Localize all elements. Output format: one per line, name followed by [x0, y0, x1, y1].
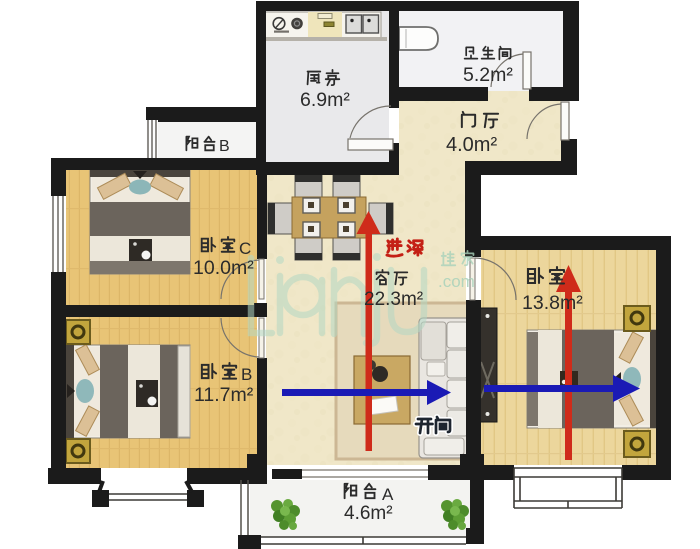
svg-text:22.3m²: 22.3m² — [364, 289, 423, 310]
svg-text:4.0m²: 4.0m² — [446, 134, 497, 156]
svg-text:13.8m²: 13.8m² — [522, 292, 583, 314]
svg-text:11.7m²: 11.7m² — [194, 384, 254, 406]
svg-text:B: B — [219, 138, 230, 155]
svg-text:5.2m²: 5.2m² — [463, 64, 513, 86]
svg-text:B: B — [241, 365, 252, 384]
svg-text:A: A — [382, 485, 394, 504]
svg-text:4.6m²: 4.6m² — [344, 503, 393, 524]
svg-text:.com: .com — [438, 272, 475, 291]
svg-text:C: C — [239, 239, 251, 258]
svg-text:10.0m²: 10.0m² — [193, 257, 254, 279]
svg-text:6.9m²: 6.9m² — [300, 89, 350, 111]
